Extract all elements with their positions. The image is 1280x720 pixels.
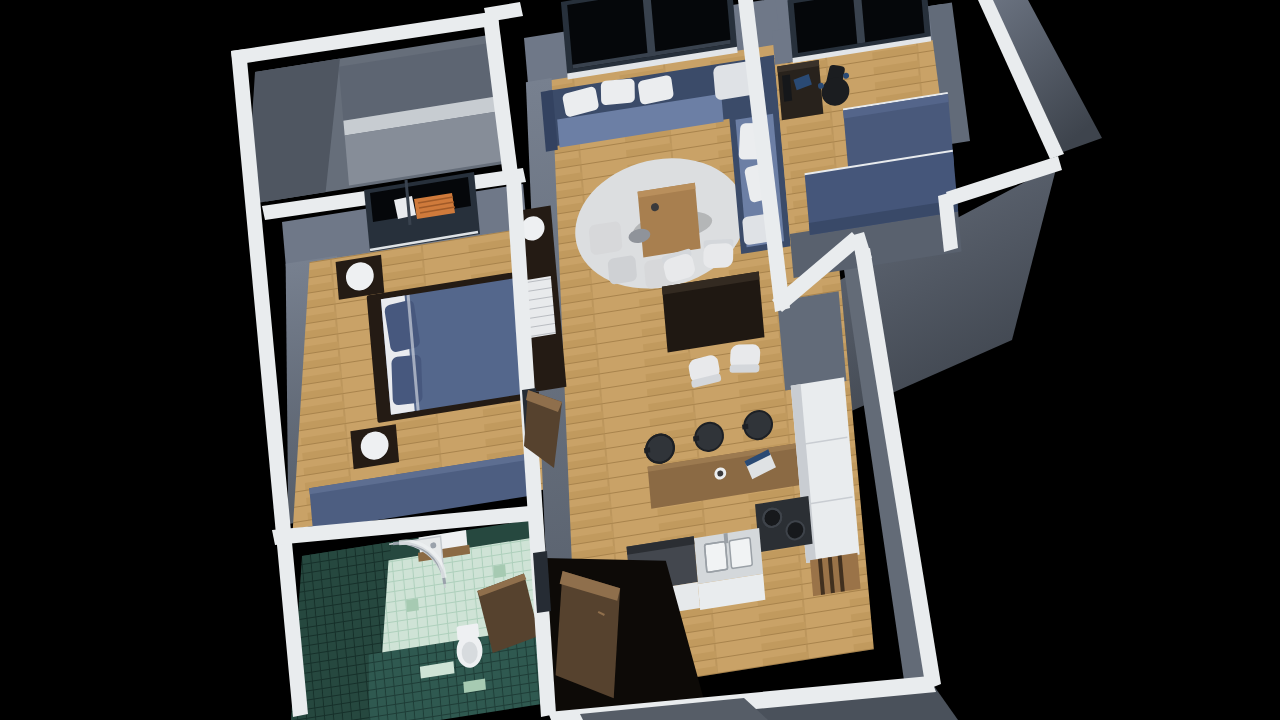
wood-shelf-unit <box>810 553 861 596</box>
bedroom-white-pane <box>394 196 416 219</box>
chair-back-4 <box>729 364 759 373</box>
sink-basin-1 <box>704 541 727 572</box>
pouf-1 <box>588 221 622 256</box>
floor-accent-tile-3 <box>406 598 419 612</box>
pouf-2 <box>607 255 637 285</box>
apartment-render-stage <box>0 0 1280 720</box>
stool-leg-1 <box>644 447 650 453</box>
sink-basin-2 <box>729 537 752 568</box>
floorplan-3d-render <box>0 0 1280 720</box>
stool-leg-2 <box>693 435 699 441</box>
chair-seat-2 <box>703 243 733 269</box>
stool-leg-3 <box>742 424 748 430</box>
floor-accent-tile-4 <box>493 564 506 578</box>
dining-chair-2 <box>703 239 733 269</box>
dining-chair-4 <box>729 344 760 373</box>
sofa-pillow-2 <box>601 78 635 105</box>
stove <box>755 496 813 552</box>
